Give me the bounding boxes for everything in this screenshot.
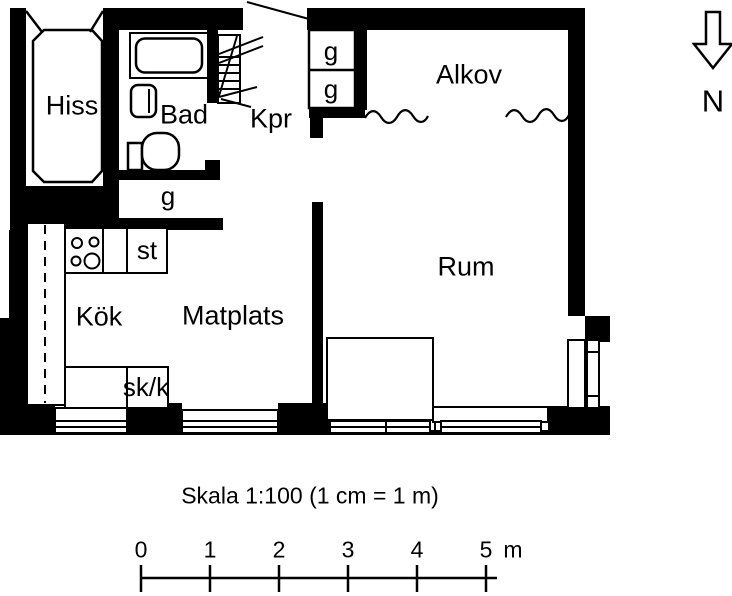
- room-label-matplats: Matplats: [182, 303, 284, 330]
- wall-segment: [0, 318, 27, 406]
- elevator-door-line: [26, 11, 42, 32]
- window-sill: [182, 410, 278, 421]
- toilet-tank-icon: [128, 143, 142, 170]
- wall-segment: [307, 8, 585, 30]
- curtain-wave-icon: [365, 110, 428, 123]
- elevator-door-line: [90, 11, 103, 32]
- wall-segment: [119, 8, 243, 30]
- floor-plan-page: Hiss Bad Kpr Alkov Rum Kök Matplats g g …: [0, 0, 732, 596]
- wall-segment: [103, 8, 119, 188]
- wall-segment: [585, 316, 610, 342]
- entrance-door-swing-line: [247, 2, 309, 19]
- fixture-label-cupboard: sk/k: [123, 374, 169, 400]
- wall-segment: [312, 202, 323, 410]
- balcony-door-leaf: [587, 340, 599, 408]
- scale-tick-label: 3: [342, 539, 355, 562]
- curtain-wave-icon: [506, 109, 569, 122]
- scale-caption: Skala 1:100 (1 cm = 1 m): [181, 485, 439, 508]
- curtain-wave-icons: [365, 109, 569, 123]
- room-label-kpr: Kpr: [250, 106, 292, 133]
- closet-label-alkov-bot: g: [324, 76, 338, 102]
- closet-label-alkov-top: g: [324, 38, 338, 64]
- scale-tick-label: 1: [204, 539, 217, 562]
- balcony-door-frame: [568, 340, 585, 408]
- toilet-bowl-icon: [142, 133, 179, 170]
- coat-rack-icon: [218, 35, 263, 107]
- bathtub-inner-icon: [136, 39, 202, 73]
- wall-segment: [9, 230, 27, 320]
- scale-tick-label: 4: [411, 539, 424, 562]
- wall-segment: [10, 8, 26, 204]
- room-label-bad: Bad: [160, 102, 208, 129]
- fixture-label-stove: st: [137, 237, 157, 263]
- room-label-kok: Kök: [76, 304, 123, 331]
- bed: [327, 338, 433, 420]
- room-label-rum: Rum: [437, 254, 494, 281]
- wall-segment: [119, 170, 220, 180]
- scale-unit-label: m: [503, 539, 522, 562]
- closet-label-hall: g: [161, 183, 175, 209]
- sink-icon: [131, 85, 156, 117]
- window-sill: [55, 408, 127, 421]
- scale-tick-label: 0: [135, 539, 148, 562]
- scale-tick-label: 2: [273, 539, 286, 562]
- wall-segment: [310, 106, 323, 138]
- wall-segment: [355, 30, 367, 110]
- north-arrow-icon: [694, 12, 732, 68]
- north-label: N: [702, 86, 724, 117]
- room-label-alkov: Alkov: [436, 62, 502, 89]
- scale-tick-label: 5: [480, 539, 493, 562]
- wall-segment: [568, 8, 585, 316]
- room-label-hiss: Hiss: [46, 93, 99, 120]
- radiator: [433, 407, 548, 422]
- balcony-door: [568, 340, 599, 408]
- scale-bar: [140, 565, 497, 592]
